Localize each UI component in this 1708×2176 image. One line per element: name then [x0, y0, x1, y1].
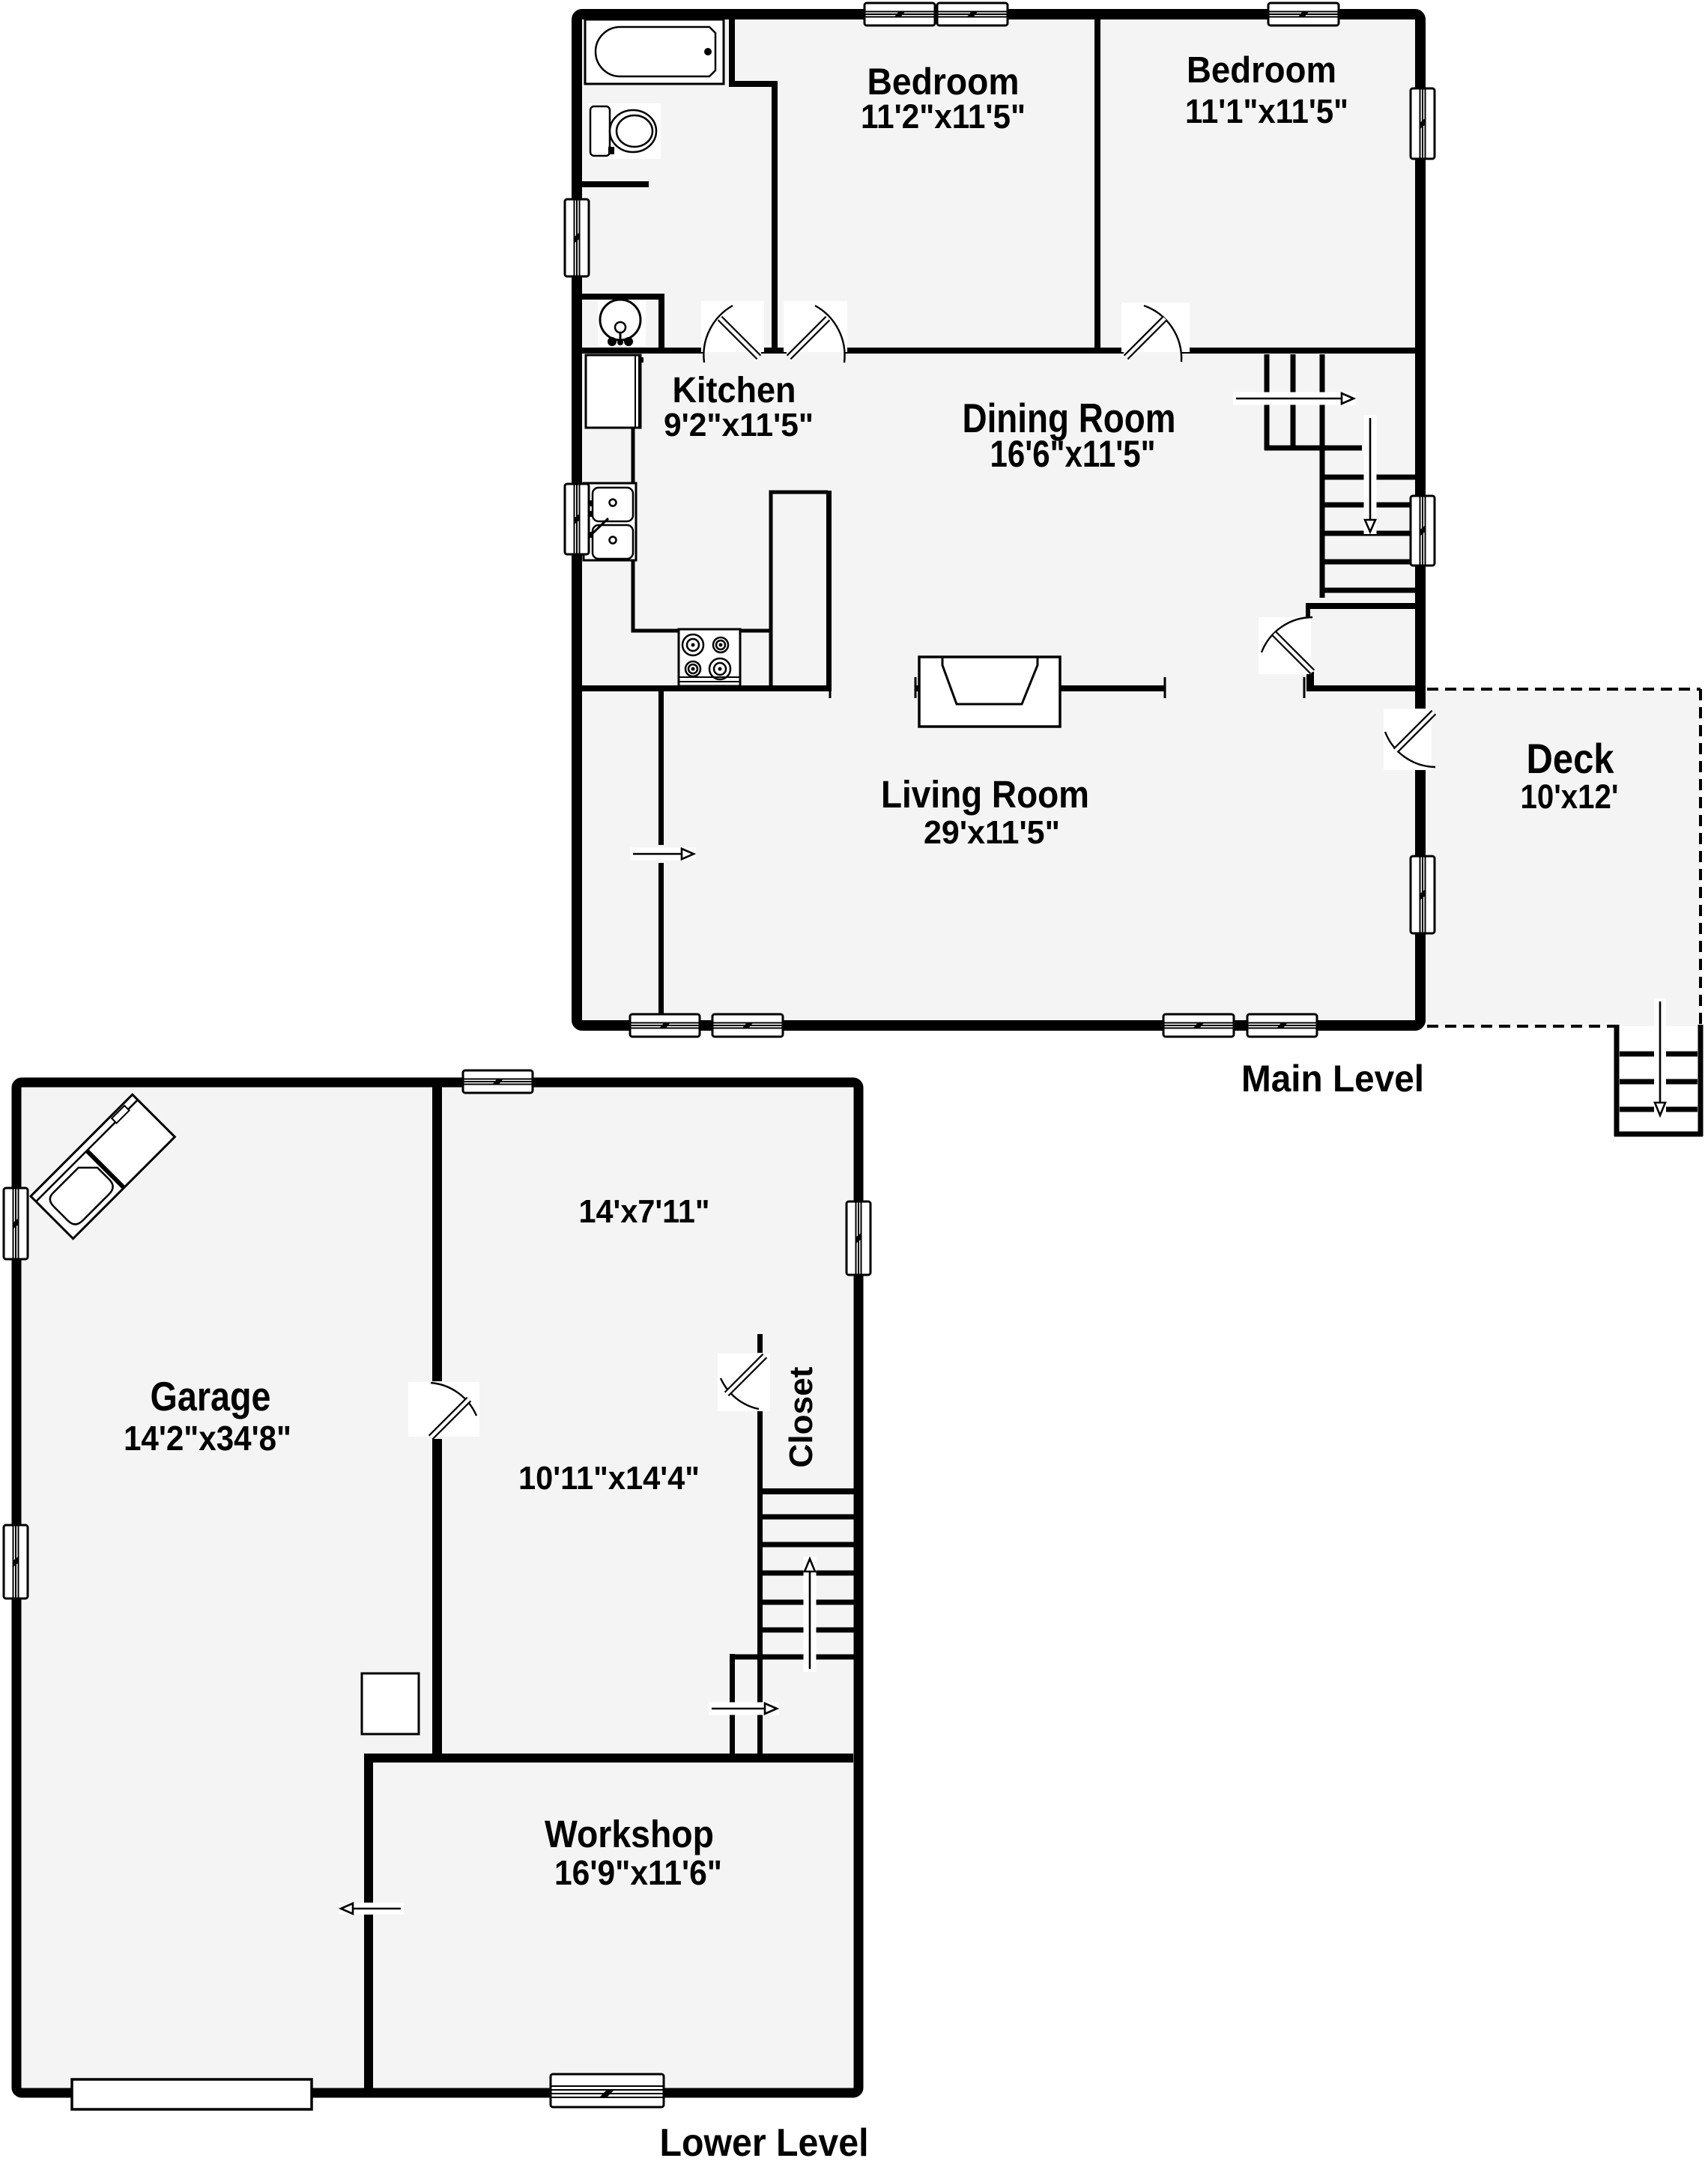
svg-text:10'11"x14'4": 10'11"x14'4" [518, 1460, 700, 1497]
svg-text:9'2"x11'5": 9'2"x11'5" [664, 407, 814, 443]
svg-text:14'2"x34'8": 14'2"x34'8" [124, 1419, 291, 1458]
svg-text:Bedroom: Bedroom [1187, 50, 1336, 91]
svg-text:Workshop: Workshop [545, 1813, 714, 1855]
svg-text:Garage: Garage [151, 1373, 271, 1419]
svg-text:Lower Level: Lower Level [660, 2121, 869, 2165]
svg-text:Living Room: Living Room [881, 773, 1089, 816]
svg-text:Main Level: Main Level [1241, 1058, 1424, 1100]
svg-text:29'x11'5": 29'x11'5" [924, 814, 1060, 851]
svg-text:Deck: Deck [1527, 735, 1615, 782]
svg-text:Kitchen: Kitchen [673, 371, 796, 410]
svg-text:11'2"x11'5": 11'2"x11'5" [861, 97, 1026, 136]
svg-text:14'x7'11": 14'x7'11" [579, 1193, 710, 1230]
svg-text:11'1"x11'5": 11'1"x11'5" [1185, 92, 1348, 130]
svg-text:16'9"x11'6": 16'9"x11'6" [554, 1853, 722, 1892]
svg-text:Closet: Closet [783, 1366, 820, 1467]
svg-text:16'6"x11'5": 16'6"x11'5" [990, 433, 1156, 475]
svg-text:Bedroom: Bedroom [867, 61, 1020, 103]
svg-text:10'x12': 10'x12' [1521, 778, 1619, 816]
